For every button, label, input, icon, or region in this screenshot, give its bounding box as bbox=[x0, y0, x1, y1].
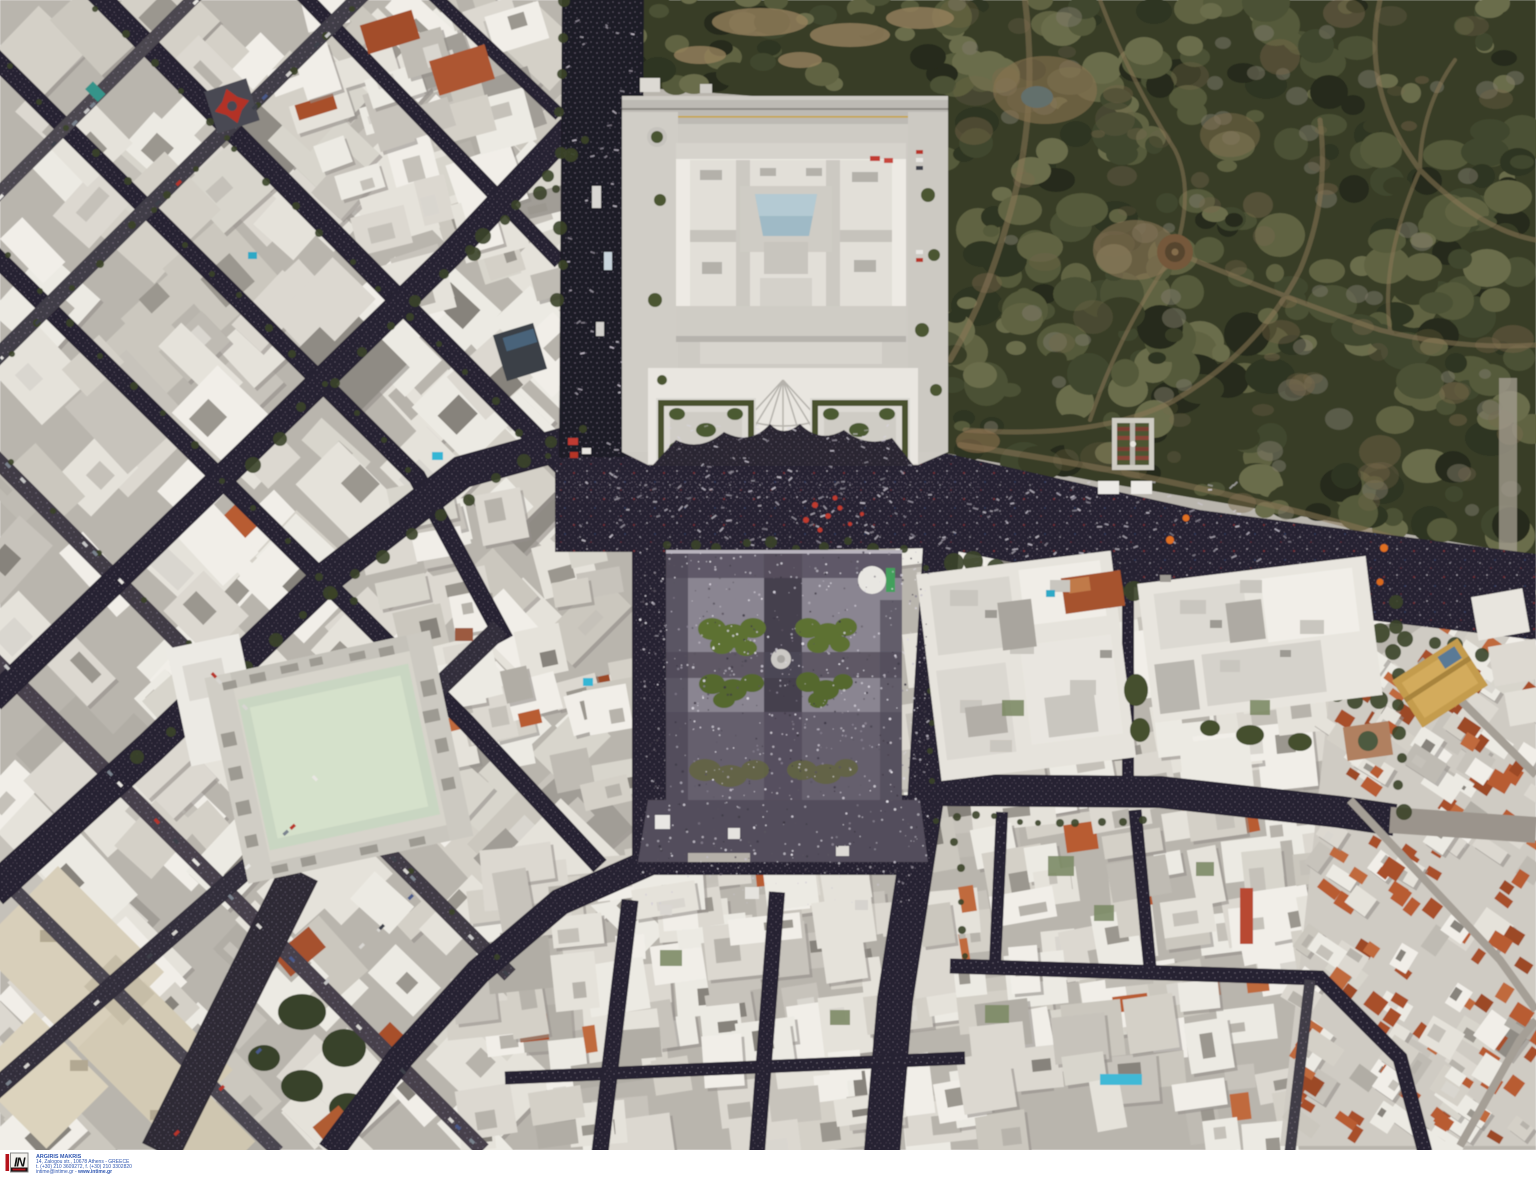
svg-text:intime@intime.gr - www.intime.: intime@intime.gr - www.intime.gr bbox=[36, 1169, 112, 1175]
